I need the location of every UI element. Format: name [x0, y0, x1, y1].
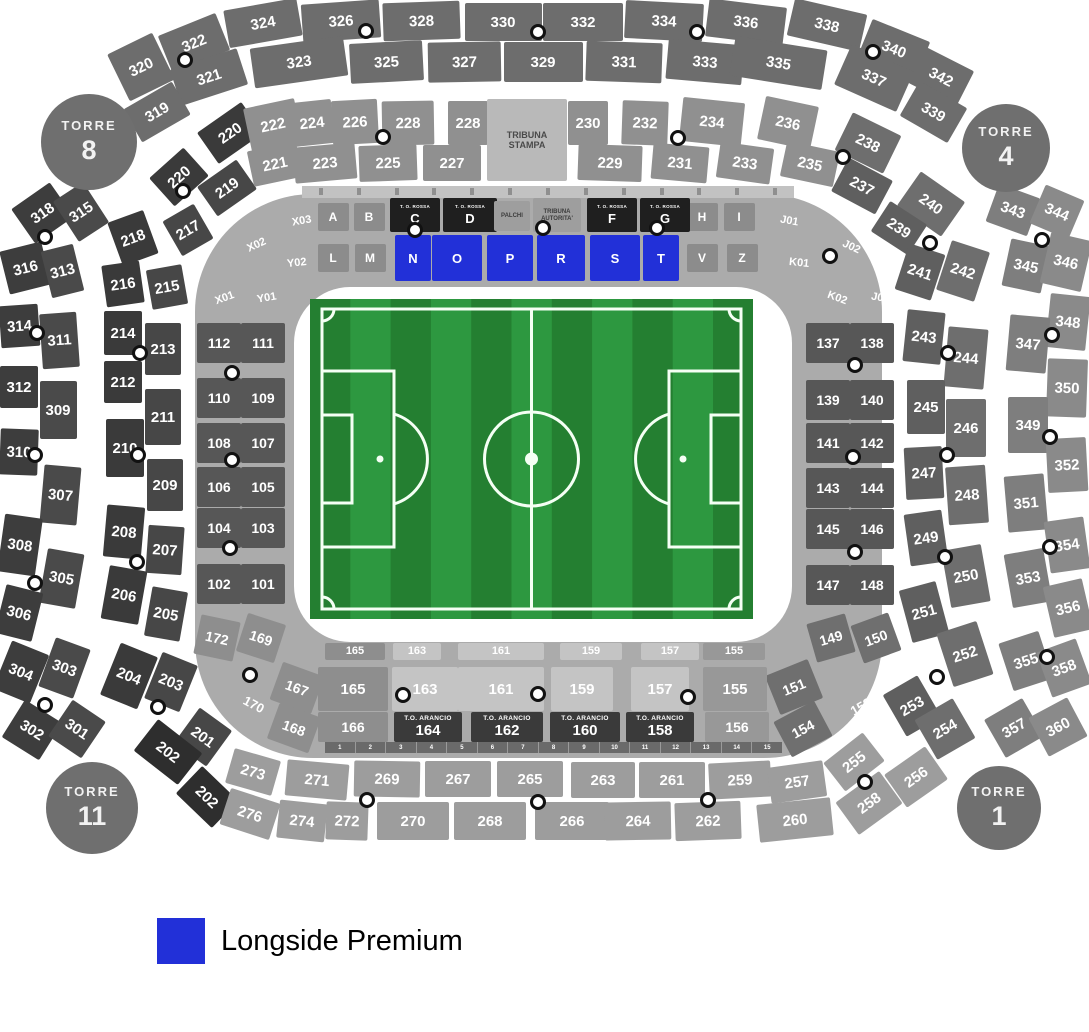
- section-label: 172: [204, 629, 230, 648]
- section-235[interactable]: 235: [780, 141, 840, 187]
- section-label: 105: [251, 480, 274, 494]
- seat-view-marker[interactable]: [530, 794, 546, 810]
- seat-view-marker[interactable]: [835, 149, 851, 165]
- seat-view-marker[interactable]: [37, 229, 53, 245]
- seat-view-marker[interactable]: [175, 183, 191, 199]
- section-label: 360: [1043, 715, 1072, 740]
- section-label: 146: [860, 522, 883, 536]
- section-label: 167: [284, 677, 311, 698]
- section-label: 215: [153, 277, 180, 296]
- section-label: 311: [46, 332, 71, 349]
- section-165[interactable]: 165: [318, 667, 388, 711]
- seat-view-marker[interactable]: [939, 447, 955, 463]
- section-207[interactable]: 207: [145, 525, 184, 575]
- section-308[interactable]: 308: [0, 514, 43, 577]
- section-351[interactable]: 351: [1004, 473, 1049, 532]
- section-label: 312: [6, 380, 31, 395]
- section-label: 108: [207, 436, 230, 450]
- seat-view-marker[interactable]: [929, 669, 945, 685]
- seat-view-marker[interactable]: [1044, 327, 1060, 343]
- section-label: 246: [953, 421, 978, 436]
- section-215[interactable]: 215: [146, 264, 188, 310]
- section-155[interactable]: 155: [703, 667, 767, 711]
- section-label: 165: [340, 682, 365, 697]
- section-329[interactable]: 329: [504, 42, 583, 82]
- section-328[interactable]: 328: [382, 1, 460, 42]
- section-label: 261: [659, 773, 684, 788]
- section-106[interactable]: 106: [197, 467, 241, 507]
- section-label: 225: [375, 155, 401, 171]
- seat-view-marker[interactable]: [865, 44, 881, 60]
- seat-view-marker[interactable]: [847, 357, 863, 373]
- section-156[interactable]: 156: [705, 712, 769, 742]
- section-307[interactable]: 307: [39, 464, 81, 525]
- section-PALCHI[interactable]: PALCHI: [494, 201, 530, 231]
- section-344[interactable]: 344: [1029, 184, 1084, 239]
- seat-view-marker[interactable]: [222, 540, 238, 556]
- section-343[interactable]: 343: [985, 184, 1040, 237]
- section-324[interactable]: 324: [223, 0, 302, 48]
- section-I[interactable]: I: [724, 203, 755, 231]
- section-350[interactable]: 350: [1046, 358, 1088, 417]
- seat-view-marker[interactable]: [395, 687, 411, 703]
- section-label: 326: [328, 13, 354, 30]
- section-label: Z: [738, 252, 745, 264]
- tower-4: TORRE4: [962, 104, 1050, 192]
- section-164[interactable]: T.O. ARANCIO164: [394, 712, 462, 742]
- section-360[interactable]: 360: [1028, 697, 1088, 757]
- section-label: 249: [913, 529, 940, 547]
- seat-view-marker[interactable]: [29, 325, 45, 341]
- section-M[interactable]: M: [355, 244, 386, 272]
- tower-number: 4: [998, 141, 1013, 172]
- section-label: 106: [207, 480, 230, 494]
- seat-view-marker[interactable]: [535, 220, 551, 236]
- seat-view-marker[interactable]: [224, 452, 240, 468]
- section-268[interactable]: 268: [454, 802, 526, 840]
- section-304[interactable]: 304: [0, 640, 49, 703]
- section-P[interactable]: P: [487, 235, 533, 281]
- section-265[interactable]: 265: [497, 761, 563, 797]
- section-159[interactable]: 159: [551, 667, 613, 711]
- section-301[interactable]: 301: [48, 700, 106, 759]
- section-sublabel: T. O. ROSSA: [650, 205, 680, 210]
- seat-view-marker[interactable]: [132, 345, 148, 361]
- section-248[interactable]: 248: [945, 465, 989, 526]
- section-160[interactable]: T.O. ARANCIO160: [550, 712, 620, 742]
- section-N[interactable]: N: [395, 235, 431, 281]
- section-208[interactable]: 208: [103, 504, 145, 559]
- section-206[interactable]: 206: [101, 565, 148, 625]
- section-219[interactable]: 219: [197, 159, 257, 216]
- seat-view-marker[interactable]: [37, 697, 53, 713]
- section-245[interactable]: 245: [907, 380, 945, 434]
- section-107[interactable]: 107: [241, 423, 285, 463]
- section-label-line: TRIBUNA: [507, 131, 548, 140]
- stair-tick: [395, 188, 399, 195]
- section-label: 216: [110, 275, 137, 293]
- section-111[interactable]: 111: [241, 323, 285, 363]
- section-label: L: [329, 252, 336, 264]
- section-234[interactable]: 234: [679, 97, 745, 147]
- section-label: 330: [490, 15, 515, 30]
- section-label: 236: [774, 113, 802, 133]
- seat-view-marker[interactable]: [530, 24, 546, 40]
- section-162[interactable]: T.O. ARANCIO162: [471, 712, 543, 742]
- section-label: 306: [5, 603, 33, 624]
- section-label: T: [657, 252, 665, 265]
- section-332[interactable]: 332: [543, 3, 623, 41]
- section-306[interactable]: 306: [0, 584, 43, 642]
- section-205[interactable]: 205: [144, 586, 188, 641]
- seat-view-marker[interactable]: [27, 447, 43, 463]
- section-271[interactable]: 271: [285, 759, 350, 800]
- section-325[interactable]: 325: [349, 40, 424, 84]
- section-242[interactable]: 242: [936, 240, 990, 302]
- seat-view-marker[interactable]: [940, 345, 956, 361]
- seat-view-marker[interactable]: [1042, 429, 1058, 445]
- section-label: 244: [953, 349, 979, 366]
- section-label: 231: [667, 154, 693, 171]
- section-label: 346: [1052, 252, 1080, 272]
- section-label: 238: [853, 131, 882, 155]
- section-224[interactable]: 224: [289, 99, 335, 147]
- section-label: 335: [764, 54, 791, 73]
- section-139[interactable]: 139: [806, 380, 850, 420]
- seat-view-marker[interactable]: [224, 365, 240, 381]
- section-label: 241: [906, 261, 934, 283]
- section-S[interactable]: S: [590, 235, 640, 281]
- section-323[interactable]: 323: [250, 36, 349, 89]
- stair-tick: [660, 188, 664, 195]
- section-161[interactable]: 161: [458, 643, 544, 660]
- section-145[interactable]: 145: [806, 509, 850, 549]
- section-259[interactable]: 259: [708, 760, 772, 799]
- seat-view-marker[interactable]: [689, 24, 705, 40]
- seat-view-marker[interactable]: [27, 575, 43, 591]
- section-label: 221: [261, 154, 289, 174]
- seat-view-marker[interactable]: [359, 792, 375, 808]
- section-213[interactable]: 213: [145, 323, 181, 375]
- section-label: 157: [661, 646, 679, 657]
- section-label: 256: [901, 764, 930, 791]
- section-309[interactable]: 309: [40, 381, 77, 439]
- section-label: 258: [854, 790, 883, 817]
- section-102[interactable]: 102: [197, 564, 241, 604]
- row-number-cell: 13: [691, 742, 722, 753]
- section-label: 164: [415, 723, 440, 738]
- seat-view-marker[interactable]: [129, 554, 145, 570]
- section-label: 305: [47, 568, 74, 587]
- section-label: 264: [625, 813, 650, 828]
- section-347[interactable]: 347: [1006, 314, 1051, 373]
- section-label: 111: [252, 336, 274, 350]
- section-label: 333: [692, 53, 718, 70]
- section-274[interactable]: 274: [276, 800, 328, 843]
- section-Z[interactable]: Z: [727, 244, 758, 272]
- tower-number: 11: [78, 801, 107, 832]
- seat-view-marker[interactable]: [857, 774, 873, 790]
- section-312[interactable]: 312: [0, 366, 38, 408]
- section-305[interactable]: 305: [38, 548, 84, 609]
- section-316[interactable]: 316: [0, 241, 51, 294]
- section-172[interactable]: 172: [193, 614, 240, 661]
- section-140[interactable]: 140: [850, 380, 894, 420]
- seat-view-marker[interactable]: [649, 220, 665, 236]
- section-H[interactable]: H: [687, 203, 718, 231]
- section-223[interactable]: 223: [293, 142, 358, 183]
- section-label: 329: [530, 55, 555, 70]
- section-label: 156: [725, 720, 748, 734]
- section-143[interactable]: 143: [806, 468, 850, 508]
- section-tribuna-stampa[interactable]: TRIBUNASTAMPA: [487, 99, 567, 181]
- seat-view-marker[interactable]: [1034, 232, 1050, 248]
- section-label: 101: [251, 577, 274, 591]
- section-260[interactable]: 260: [756, 797, 834, 843]
- section-349[interactable]: 349: [1008, 397, 1048, 453]
- section-label: 154: [789, 717, 816, 740]
- section-211[interactable]: 211: [145, 389, 181, 445]
- section-label: 155: [725, 646, 743, 657]
- section-227[interactable]: 227: [423, 145, 481, 181]
- section-217[interactable]: 217: [162, 204, 213, 257]
- section-label: 336: [733, 13, 760, 31]
- section-D[interactable]: T. O. ROSSAD: [443, 198, 497, 232]
- seat-view-marker[interactable]: [922, 235, 938, 251]
- section-230[interactable]: 230: [568, 101, 608, 145]
- seat-view-marker[interactable]: [670, 130, 686, 146]
- stair-tick: [357, 188, 361, 195]
- section-label: 109: [251, 391, 274, 405]
- seat-view-marker[interactable]: [845, 449, 861, 465]
- section-225[interactable]: 225: [358, 144, 417, 182]
- section-label: 257: [784, 773, 811, 791]
- section-335[interactable]: 335: [729, 36, 827, 90]
- stair-tick: [432, 188, 436, 195]
- seat-view-marker[interactable]: [130, 447, 146, 463]
- section-231[interactable]: 231: [651, 143, 710, 184]
- section-V[interactable]: V: [687, 244, 718, 272]
- seat-view-marker[interactable]: [1042, 539, 1058, 555]
- section-137[interactable]: 137: [806, 323, 850, 363]
- section-166[interactable]: 166: [318, 712, 388, 742]
- seat-view-marker[interactable]: [358, 23, 374, 39]
- section-K01[interactable]: K01: [788, 257, 809, 270]
- section-331[interactable]: 331: [585, 41, 662, 84]
- section-label: 204: [115, 664, 144, 687]
- row-number-cell: 2: [356, 742, 387, 753]
- section-358[interactable]: 358: [1036, 638, 1089, 697]
- section-label: 269: [374, 771, 399, 786]
- section-146[interactable]: 146: [850, 509, 894, 549]
- section-label: 251: [910, 602, 938, 623]
- seat-view-marker[interactable]: [530, 686, 546, 702]
- section-148[interactable]: 148: [850, 565, 894, 605]
- section-label: 147: [816, 578, 839, 592]
- section-109[interactable]: 109: [241, 378, 285, 418]
- section-356[interactable]: 356: [1043, 578, 1089, 638]
- section-label: 218: [119, 227, 148, 250]
- section-label: 158: [647, 723, 672, 738]
- section-label: 237: [847, 174, 876, 199]
- section-label: 219: [212, 175, 241, 202]
- section-327[interactable]: 327: [427, 41, 501, 82]
- section-352[interactable]: 352: [1046, 437, 1089, 493]
- section-label: 235: [796, 154, 824, 174]
- section-257[interactable]: 257: [767, 760, 827, 803]
- section-218[interactable]: 218: [107, 210, 158, 266]
- section-label: 260: [782, 811, 808, 829]
- seat-view-marker[interactable]: [847, 544, 863, 560]
- section-158[interactable]: T.O. ARANCIO158: [626, 712, 694, 742]
- section-label: 209: [152, 478, 177, 493]
- section-label: 337: [860, 66, 889, 90]
- section-228[interactable]: 228: [448, 101, 488, 145]
- seat-view-marker[interactable]: [1039, 649, 1055, 665]
- section-label: O: [452, 252, 462, 265]
- section-101[interactable]: 101: [241, 564, 285, 604]
- section-212[interactable]: 212: [104, 361, 142, 403]
- section-B[interactable]: B: [354, 203, 385, 231]
- section-label: 245: [913, 400, 938, 415]
- section-label: 232: [632, 115, 658, 131]
- section-157[interactable]: 157: [641, 643, 699, 660]
- legend-label: Longside Premium: [221, 925, 463, 958]
- section-label: K01: [788, 257, 809, 270]
- tower-name: TORRE: [61, 118, 116, 133]
- section-label: 356: [1054, 598, 1082, 618]
- section-311[interactable]: 311: [39, 311, 80, 368]
- stair-tick: [622, 188, 626, 195]
- section-label: 226: [342, 114, 368, 130]
- section-label: 344: [1043, 200, 1072, 224]
- section-233[interactable]: 233: [716, 141, 774, 184]
- section-label: 334: [651, 13, 677, 29]
- section-263[interactable]: 263: [571, 762, 635, 798]
- section-label: 345: [1012, 256, 1040, 276]
- section-label: 206: [110, 585, 137, 604]
- seat-view-marker[interactable]: [700, 792, 716, 808]
- section-label: 332: [570, 15, 595, 30]
- section-Y02[interactable]: Y02: [286, 257, 307, 270]
- section-L[interactable]: L: [318, 244, 349, 272]
- seat-view-marker[interactable]: [375, 129, 391, 145]
- section-270[interactable]: 270: [377, 802, 449, 840]
- row-number-cell: 4: [417, 742, 448, 753]
- section-103[interactable]: 103: [241, 508, 285, 548]
- section-label: 320: [126, 55, 155, 79]
- section-R[interactable]: R: [537, 235, 585, 281]
- section-261[interactable]: 261: [639, 762, 705, 798]
- section-226[interactable]: 226: [331, 99, 379, 145]
- section-label: 161: [488, 682, 513, 697]
- section-label: 357: [999, 715, 1028, 741]
- section-label: 227: [439, 156, 464, 171]
- section-sublabel: T. O. ROSSA: [597, 205, 627, 210]
- section-147[interactable]: 147: [806, 565, 850, 605]
- section-303[interactable]: 303: [38, 637, 91, 699]
- seat-view-marker[interactable]: [680, 689, 696, 705]
- row-number-cell: 12: [661, 742, 692, 753]
- section-label: 243: [911, 328, 937, 346]
- section-label: F: [608, 212, 616, 225]
- section-label: 268: [477, 814, 502, 829]
- section-155[interactable]: 155: [703, 643, 765, 660]
- section-315[interactable]: 315: [53, 182, 109, 242]
- section-label: 160: [572, 723, 597, 738]
- section-232[interactable]: 232: [621, 100, 669, 146]
- section-label: 323: [286, 53, 313, 71]
- section-label: 267: [445, 772, 470, 787]
- seat-view-marker[interactable]: [177, 52, 193, 68]
- stair-tick: [773, 188, 777, 195]
- seat-view-marker[interactable]: [822, 248, 838, 264]
- stair-tick: [508, 188, 512, 195]
- section-209[interactable]: 209: [147, 459, 183, 511]
- section-243[interactable]: 243: [902, 309, 945, 365]
- section-label: 103: [251, 521, 274, 535]
- section-F[interactable]: T. O. ROSSAF: [587, 198, 637, 232]
- seat-view-marker[interactable]: [407, 222, 423, 238]
- section-157[interactable]: 157: [631, 667, 689, 711]
- section-110[interactable]: 110: [197, 378, 241, 418]
- seat-view-marker[interactable]: [150, 699, 166, 715]
- section-label: 161: [492, 646, 510, 657]
- section-label: P: [506, 252, 515, 265]
- section-O[interactable]: O: [432, 235, 482, 281]
- section-T[interactable]: T: [643, 235, 679, 281]
- section-label: 166: [341, 720, 364, 734]
- section-159[interactable]: 159: [560, 643, 622, 660]
- section-229[interactable]: 229: [577, 144, 642, 182]
- section-G[interactable]: T. O. ROSSAG: [640, 198, 690, 232]
- section-label: 304: [7, 660, 36, 683]
- section-A[interactable]: A: [318, 203, 349, 231]
- stair-tick: [546, 188, 550, 195]
- section-label: 144: [860, 481, 883, 495]
- seat-view-marker[interactable]: [242, 667, 258, 683]
- section-276[interactable]: 276: [219, 788, 280, 840]
- section-144[interactable]: 144: [850, 468, 894, 508]
- section-338[interactable]: 338: [787, 0, 868, 52]
- section-label: 318: [27, 200, 56, 227]
- section-label: 222: [259, 115, 287, 135]
- section-272[interactable]: 272: [325, 801, 368, 840]
- legend-swatch-longside-premium: [157, 918, 205, 964]
- section-267[interactable]: 267: [425, 761, 491, 797]
- section-105[interactable]: 105: [241, 467, 285, 507]
- stadium-seat-map: Longside Premium 32232432632833033233433…: [0, 0, 1089, 1032]
- section-label: 137: [816, 336, 839, 350]
- section-264[interactable]: 264: [605, 801, 672, 840]
- section-112[interactable]: 112: [197, 323, 241, 363]
- seat-view-marker[interactable]: [937, 549, 953, 565]
- section-313[interactable]: 313: [40, 244, 84, 299]
- section-label: 145: [816, 522, 839, 536]
- section-label: 214: [110, 326, 135, 341]
- section-163[interactable]: 163: [393, 643, 441, 660]
- section-label: A: [329, 211, 338, 223]
- section-216[interactable]: 216: [101, 261, 144, 308]
- section-label: 233: [732, 154, 759, 172]
- section-141[interactable]: 141: [806, 423, 850, 463]
- section-165[interactable]: 165: [325, 643, 385, 660]
- section-label: 211: [151, 410, 175, 425]
- section-label: 159: [569, 682, 594, 697]
- section-label: 348: [1055, 313, 1081, 331]
- section-266[interactable]: 266: [535, 802, 609, 840]
- section-label: 212: [110, 375, 135, 390]
